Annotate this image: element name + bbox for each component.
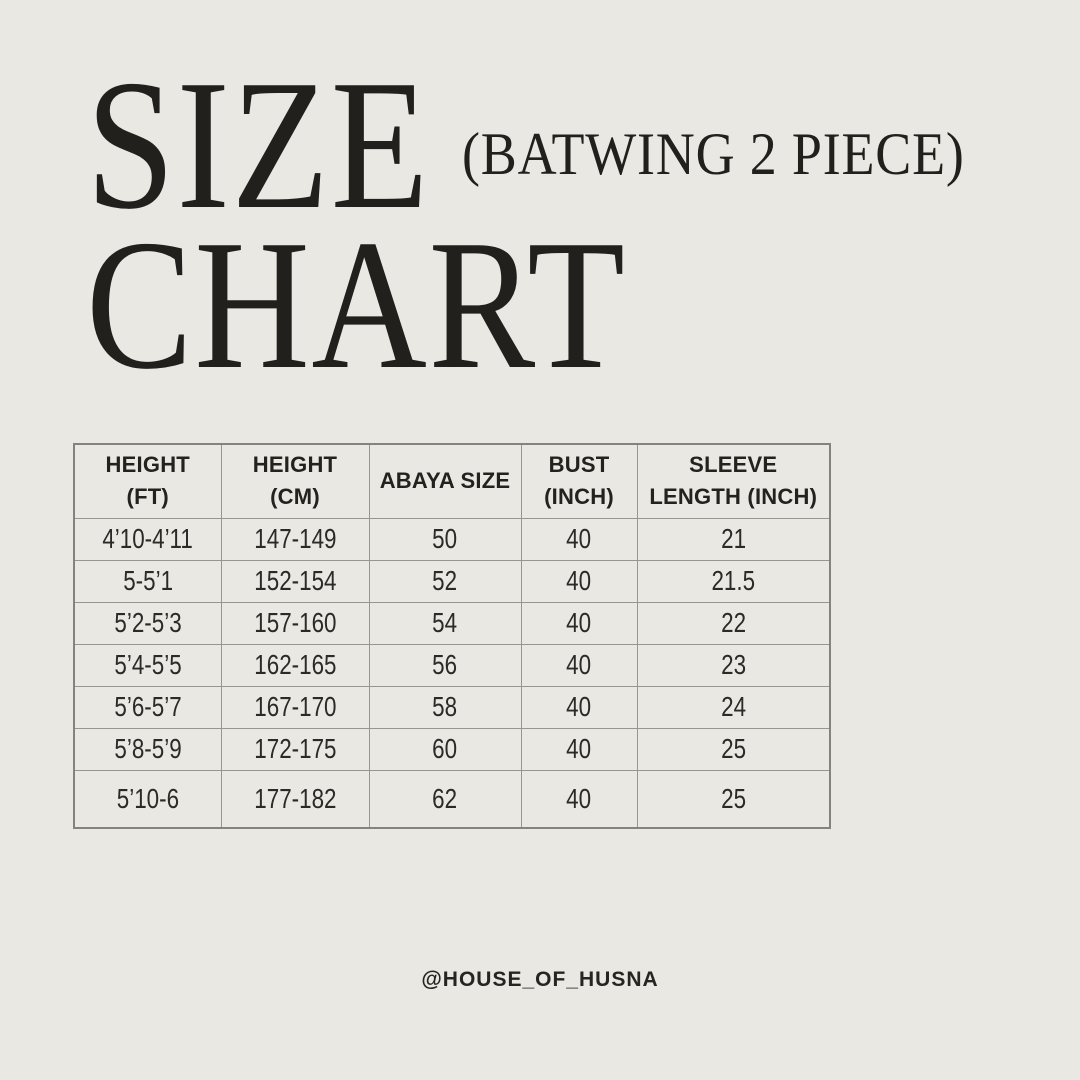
header-cell-height-ft: HEIGHT (FT) — [74, 444, 221, 518]
cell-value: 40 — [567, 733, 592, 765]
cell-value: 40 — [567, 523, 592, 555]
table-row: 5’4-5’5 162-165 56 40 23 — [74, 644, 830, 686]
header-label: ABAYA SIZE — [370, 465, 521, 497]
table-cell-abaya-size: 56 — [369, 644, 521, 686]
cell-value: 22 — [721, 607, 746, 639]
table-cell-bust: 40 — [521, 644, 637, 686]
cell-value: 5-5’1 — [123, 565, 173, 597]
title-chart-text: CHART — [86, 212, 627, 398]
header-label: BUST — [522, 449, 637, 481]
cell-value: 152-154 — [254, 565, 336, 597]
cell-value: 40 — [567, 783, 592, 815]
table-cell-sleeve-length: 24 — [637, 686, 830, 728]
header-label: SLEEVE — [638, 449, 830, 481]
table-cell-height-cm: 172-175 — [221, 728, 369, 770]
cell-value: 40 — [567, 607, 592, 639]
header-label: HEIGHT — [222, 449, 369, 481]
table-cell-height-cm: 147-149 — [221, 518, 369, 560]
table-cell-height-cm: 177-182 — [221, 770, 369, 828]
cell-value: 56 — [433, 649, 458, 681]
table-cell-height-ft: 5’4-5’5 — [74, 644, 221, 686]
table-cell-bust: 40 — [521, 770, 637, 828]
table-cell-height-cm: 167-170 — [221, 686, 369, 728]
table-cell-height-cm: 152-154 — [221, 560, 369, 602]
cell-value: 24 — [721, 691, 746, 723]
table-cell-height-ft: 5’10-6 — [74, 770, 221, 828]
title-subtitle-text: (BATWING 2 PIECE) — [462, 124, 965, 184]
cell-value: 21.5 — [711, 565, 755, 597]
cell-value: 54 — [433, 607, 458, 639]
header-label: (CM) — [222, 481, 369, 513]
cell-value: 40 — [567, 565, 592, 597]
title-chart: CHART — [86, 212, 715, 398]
cell-value: 5’10-6 — [117, 783, 179, 815]
table-cell-bust: 40 — [521, 602, 637, 644]
cell-value: 177-182 — [254, 783, 336, 815]
cell-value: 162-165 — [254, 649, 336, 681]
social-handle: @HOUSE_OF_HUSNA — [0, 968, 1080, 992]
table-cell-sleeve-length: 22 — [637, 602, 830, 644]
table-row: 5’2-5’3 157-160 54 40 22 — [74, 602, 830, 644]
table-cell-height-cm: 157-160 — [221, 602, 369, 644]
table-cell-bust: 40 — [521, 686, 637, 728]
table-cell-abaya-size: 60 — [369, 728, 521, 770]
table-cell-sleeve-length: 21.5 — [637, 560, 830, 602]
title-subtitle: (BATWING 2 PIECE) — [462, 124, 1021, 184]
cell-value: 23 — [721, 649, 746, 681]
table-cell-height-ft: 5-5’1 — [74, 560, 221, 602]
header-cell-height-cm: HEIGHT (CM) — [221, 444, 369, 518]
header-row: HEIGHT (FT) HEIGHT (CM) ABAYA SIZE BUST … — [74, 444, 830, 518]
cell-value: 172-175 — [254, 733, 336, 765]
table-cell-abaya-size: 62 — [369, 770, 521, 828]
table-cell-sleeve-length: 25 — [637, 770, 830, 828]
table-cell-height-ft: 5’6-5’7 — [74, 686, 221, 728]
table-body: 4’10-4’11 147-149 50 40 21 5-5’1 152-154… — [74, 518, 830, 828]
cell-value: 60 — [433, 733, 458, 765]
cell-value: 40 — [567, 691, 592, 723]
header-cell-sleeve-length: SLEEVE LENGTH (INCH) — [637, 444, 830, 518]
cell-value: 4’10-4’11 — [103, 523, 194, 555]
table-cell-height-ft: 5’2-5’3 — [74, 602, 221, 644]
table-cell-abaya-size: 54 — [369, 602, 521, 644]
table-cell-sleeve-length: 25 — [637, 728, 830, 770]
cell-value: 21 — [721, 523, 746, 555]
table-cell-bust: 40 — [521, 518, 637, 560]
table-cell-abaya-size: 58 — [369, 686, 521, 728]
cell-value: 50 — [433, 523, 458, 555]
cell-value: 147-149 — [254, 523, 336, 555]
table-cell-sleeve-length: 23 — [637, 644, 830, 686]
cell-value: 58 — [433, 691, 458, 723]
table-cell-abaya-size: 52 — [369, 560, 521, 602]
cell-value: 5’2-5’3 — [114, 607, 181, 639]
table-row: 5-5’1 152-154 52 40 21.5 — [74, 560, 830, 602]
header-label: LENGTH (INCH) — [638, 481, 830, 513]
table-cell-abaya-size: 50 — [369, 518, 521, 560]
header-label: HEIGHT — [75, 449, 221, 481]
cell-value: 157-160 — [254, 607, 336, 639]
table-cell-height-cm: 162-165 — [221, 644, 369, 686]
cell-value: 62 — [433, 783, 458, 815]
table-cell-bust: 40 — [521, 560, 637, 602]
size-chart-graphic: SIZE (BATWING 2 PIECE) CHART HEIGHT (FT)… — [0, 0, 1080, 1080]
table-row: 4’10-4’11 147-149 50 40 21 — [74, 518, 830, 560]
table-cell-bust: 40 — [521, 728, 637, 770]
table-row: 5’10-6 177-182 62 40 25 — [74, 770, 830, 828]
size-chart-table: HEIGHT (FT) HEIGHT (CM) ABAYA SIZE BUST … — [73, 443, 831, 829]
table-row: 5’6-5’7 167-170 58 40 24 — [74, 686, 830, 728]
table-cell-height-ft: 5’8-5’9 — [74, 728, 221, 770]
cell-value: 5’6-5’7 — [114, 691, 181, 723]
header-cell-bust: BUST (INCH) — [521, 444, 637, 518]
cell-value: 40 — [567, 649, 592, 681]
cell-value: 25 — [721, 783, 746, 815]
cell-value: 52 — [433, 565, 458, 597]
table-cell-height-ft: 4’10-4’11 — [74, 518, 221, 560]
cell-value: 5’4-5’5 — [114, 649, 181, 681]
table-cell-sleeve-length: 21 — [637, 518, 830, 560]
header-cell-abaya-size: ABAYA SIZE — [369, 444, 521, 518]
cell-value: 167-170 — [254, 691, 336, 723]
table-row: 5’8-5’9 172-175 60 40 25 — [74, 728, 830, 770]
cell-value: 5’8-5’9 — [114, 733, 181, 765]
table-header: HEIGHT (FT) HEIGHT (CM) ABAYA SIZE BUST … — [74, 444, 830, 518]
header-label: (FT) — [75, 481, 221, 513]
header-label: (INCH) — [522, 481, 637, 513]
cell-value: 25 — [721, 733, 746, 765]
